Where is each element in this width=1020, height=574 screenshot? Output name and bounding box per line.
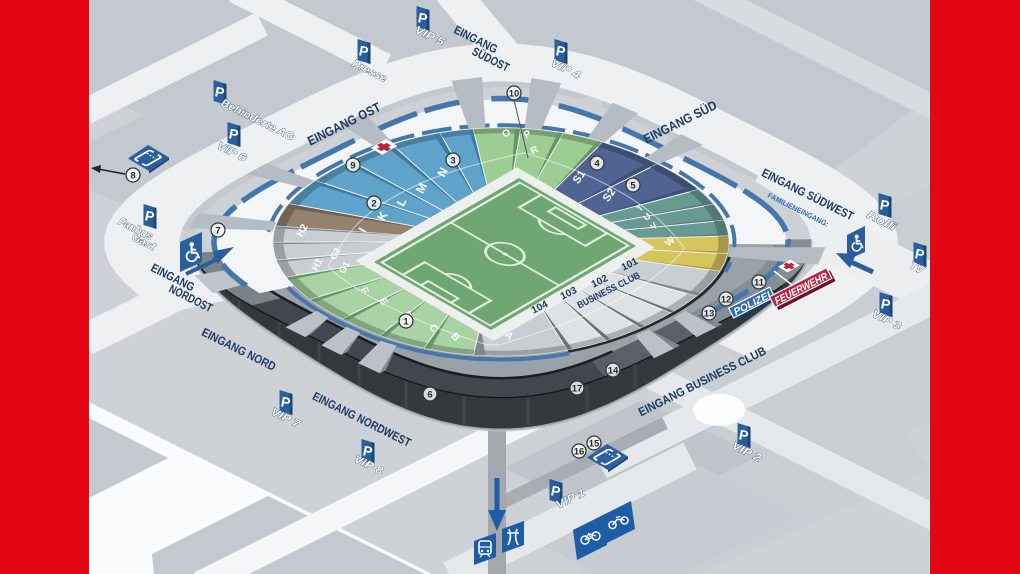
svg-text:4: 4 xyxy=(594,158,600,169)
svg-text:5: 5 xyxy=(630,180,636,191)
svg-text:14: 14 xyxy=(608,365,619,376)
svg-text:P: P xyxy=(359,42,369,59)
svg-text:7: 7 xyxy=(215,225,220,236)
svg-text:13: 13 xyxy=(704,308,715,319)
svg-text:11: 11 xyxy=(754,277,765,288)
svg-text:12: 12 xyxy=(721,294,732,305)
svg-text:17: 17 xyxy=(572,383,583,394)
svg-text:2: 2 xyxy=(371,198,376,209)
svg-text:6: 6 xyxy=(427,389,432,400)
svg-text:16: 16 xyxy=(574,446,585,457)
svg-text:P: P xyxy=(229,125,239,142)
svg-text:P: P xyxy=(145,207,155,224)
svg-text:8: 8 xyxy=(130,170,135,181)
svg-text:P: P xyxy=(556,42,566,59)
svg-text:P: P xyxy=(281,393,291,410)
svg-text:1: 1 xyxy=(403,316,409,327)
svg-text:P: P xyxy=(915,245,925,262)
svg-text:10: 10 xyxy=(509,88,520,99)
svg-text:P: P xyxy=(881,295,891,312)
svg-text:P: P xyxy=(880,196,890,213)
svg-text:3: 3 xyxy=(450,155,455,166)
svg-text:P: P xyxy=(551,482,561,499)
svg-text:15: 15 xyxy=(589,438,600,449)
svg-text:9: 9 xyxy=(350,160,355,171)
svg-text:P: P xyxy=(739,426,749,443)
